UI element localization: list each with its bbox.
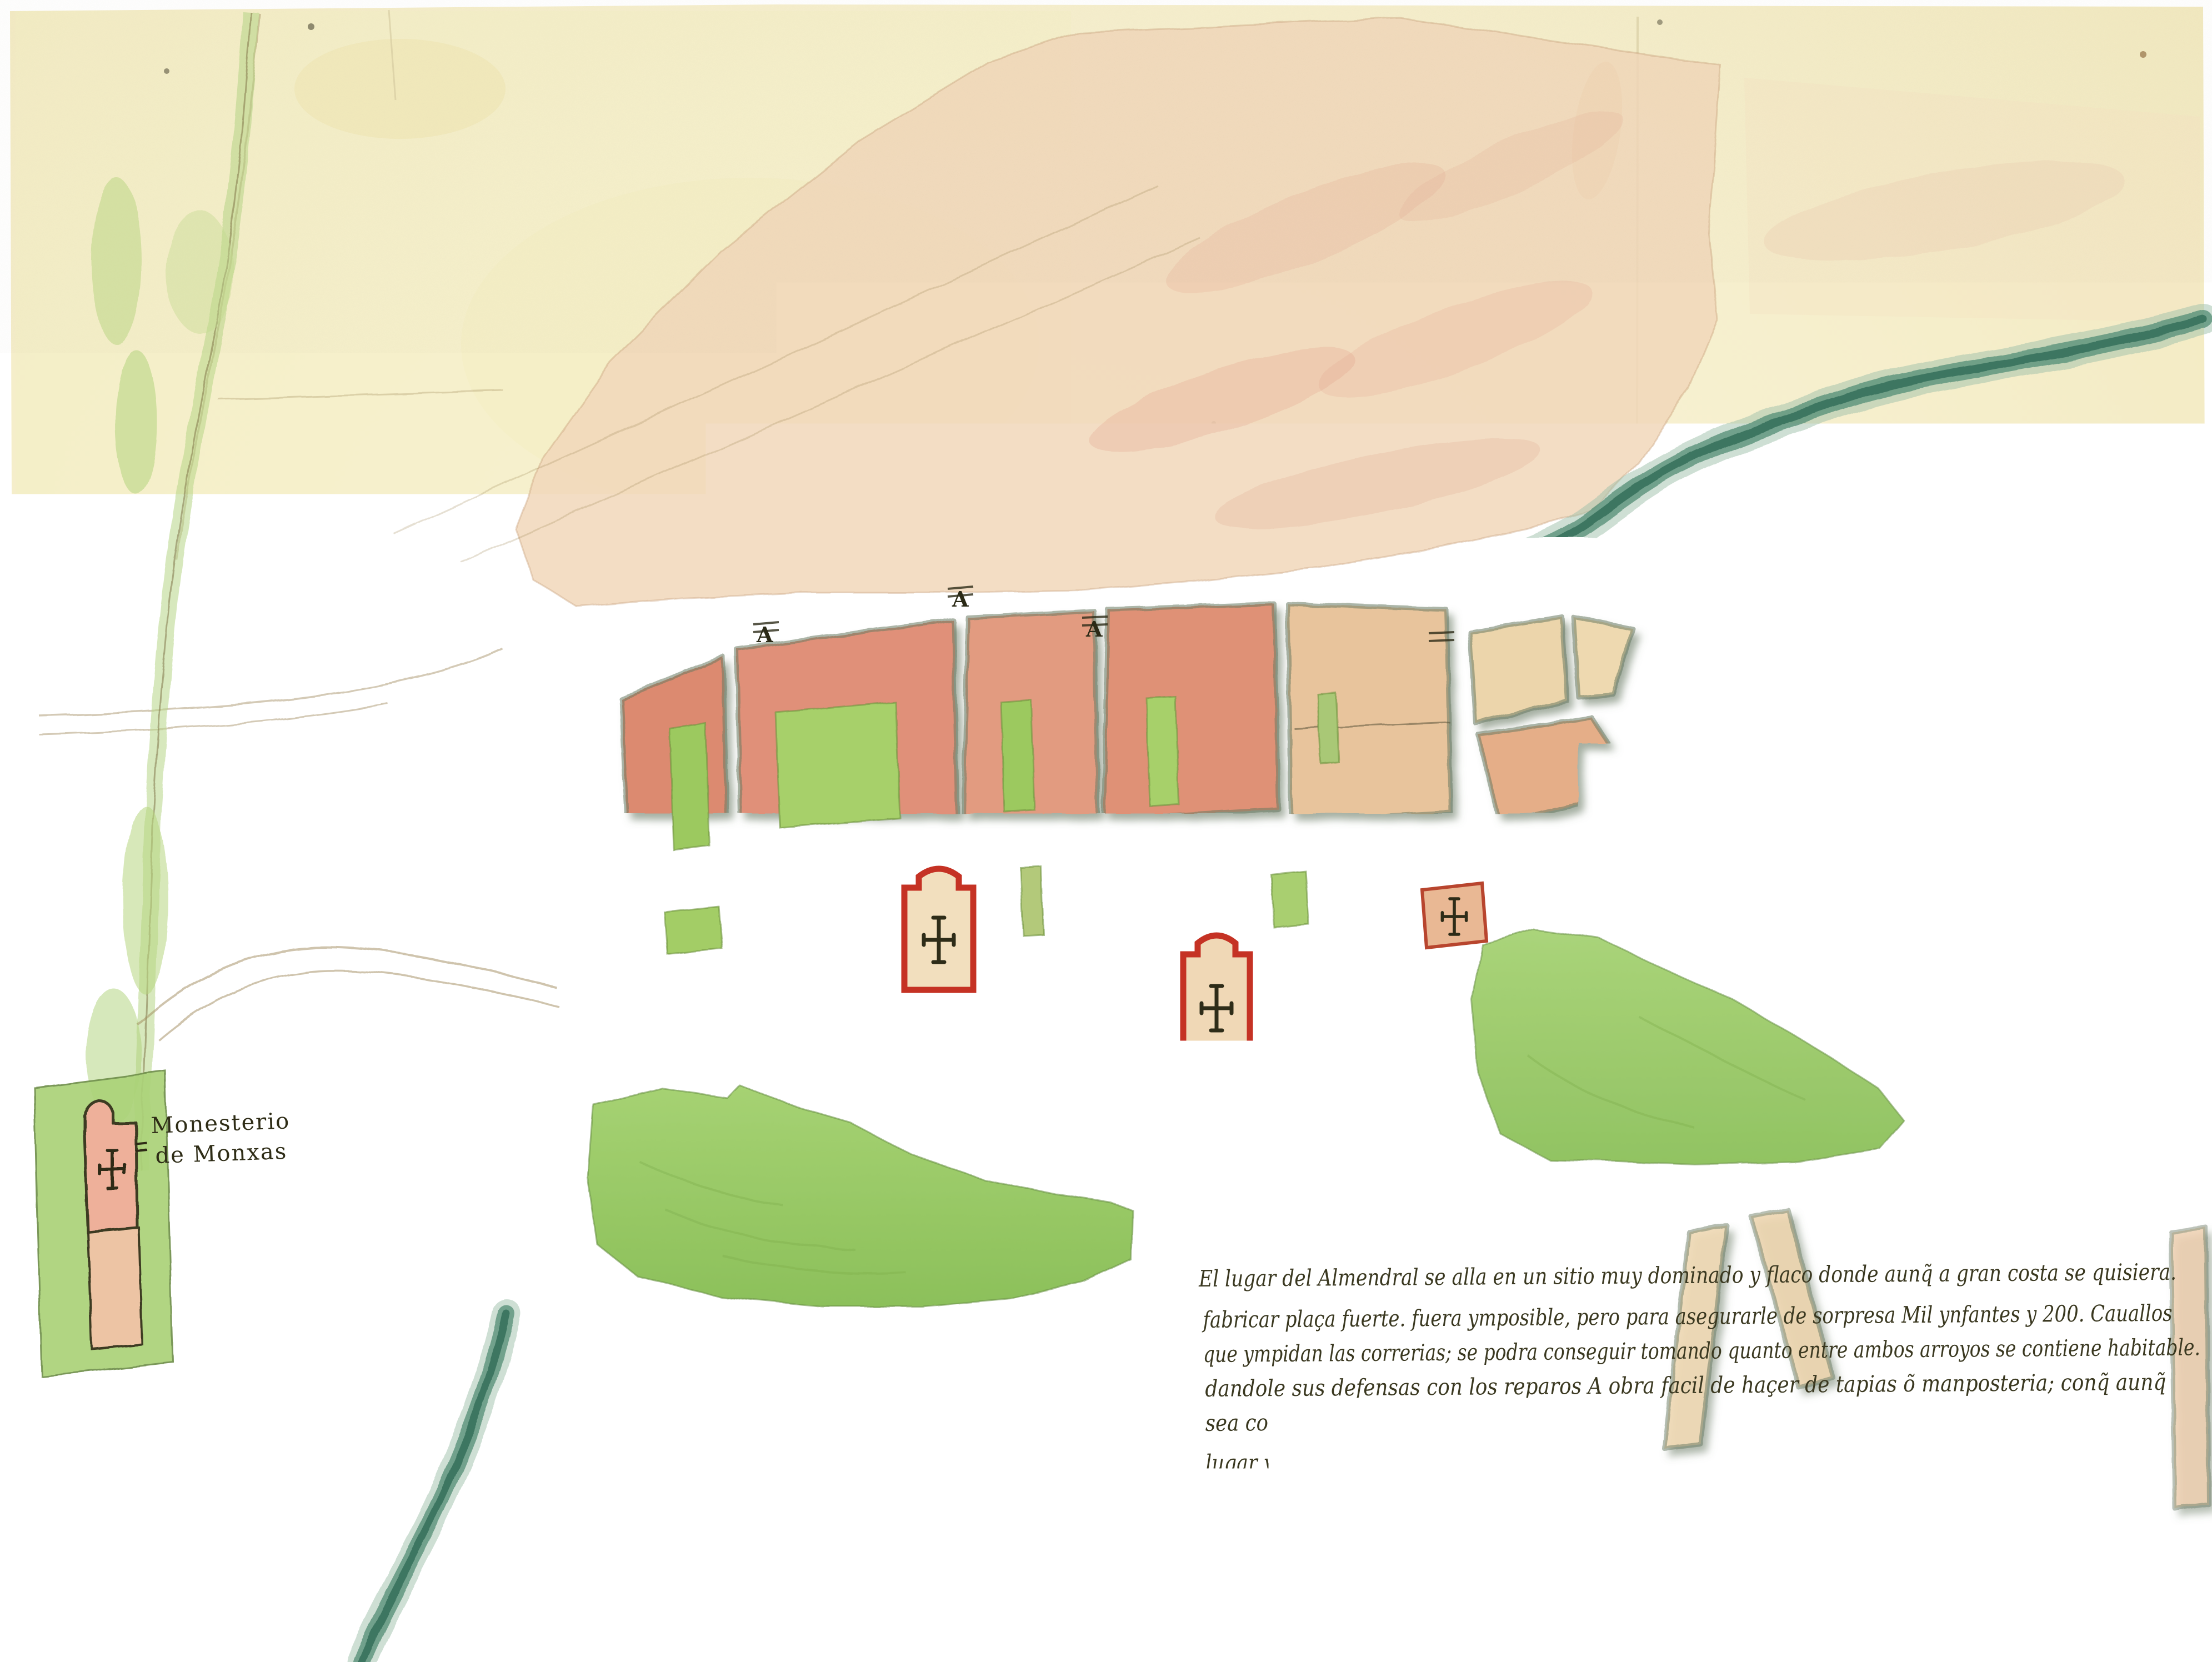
paper-grain bbox=[0, 0, 2212, 1662]
scanned-map-page: A A A A A A A A A A A A A A A A A A B B … bbox=[0, 0, 2212, 1662]
